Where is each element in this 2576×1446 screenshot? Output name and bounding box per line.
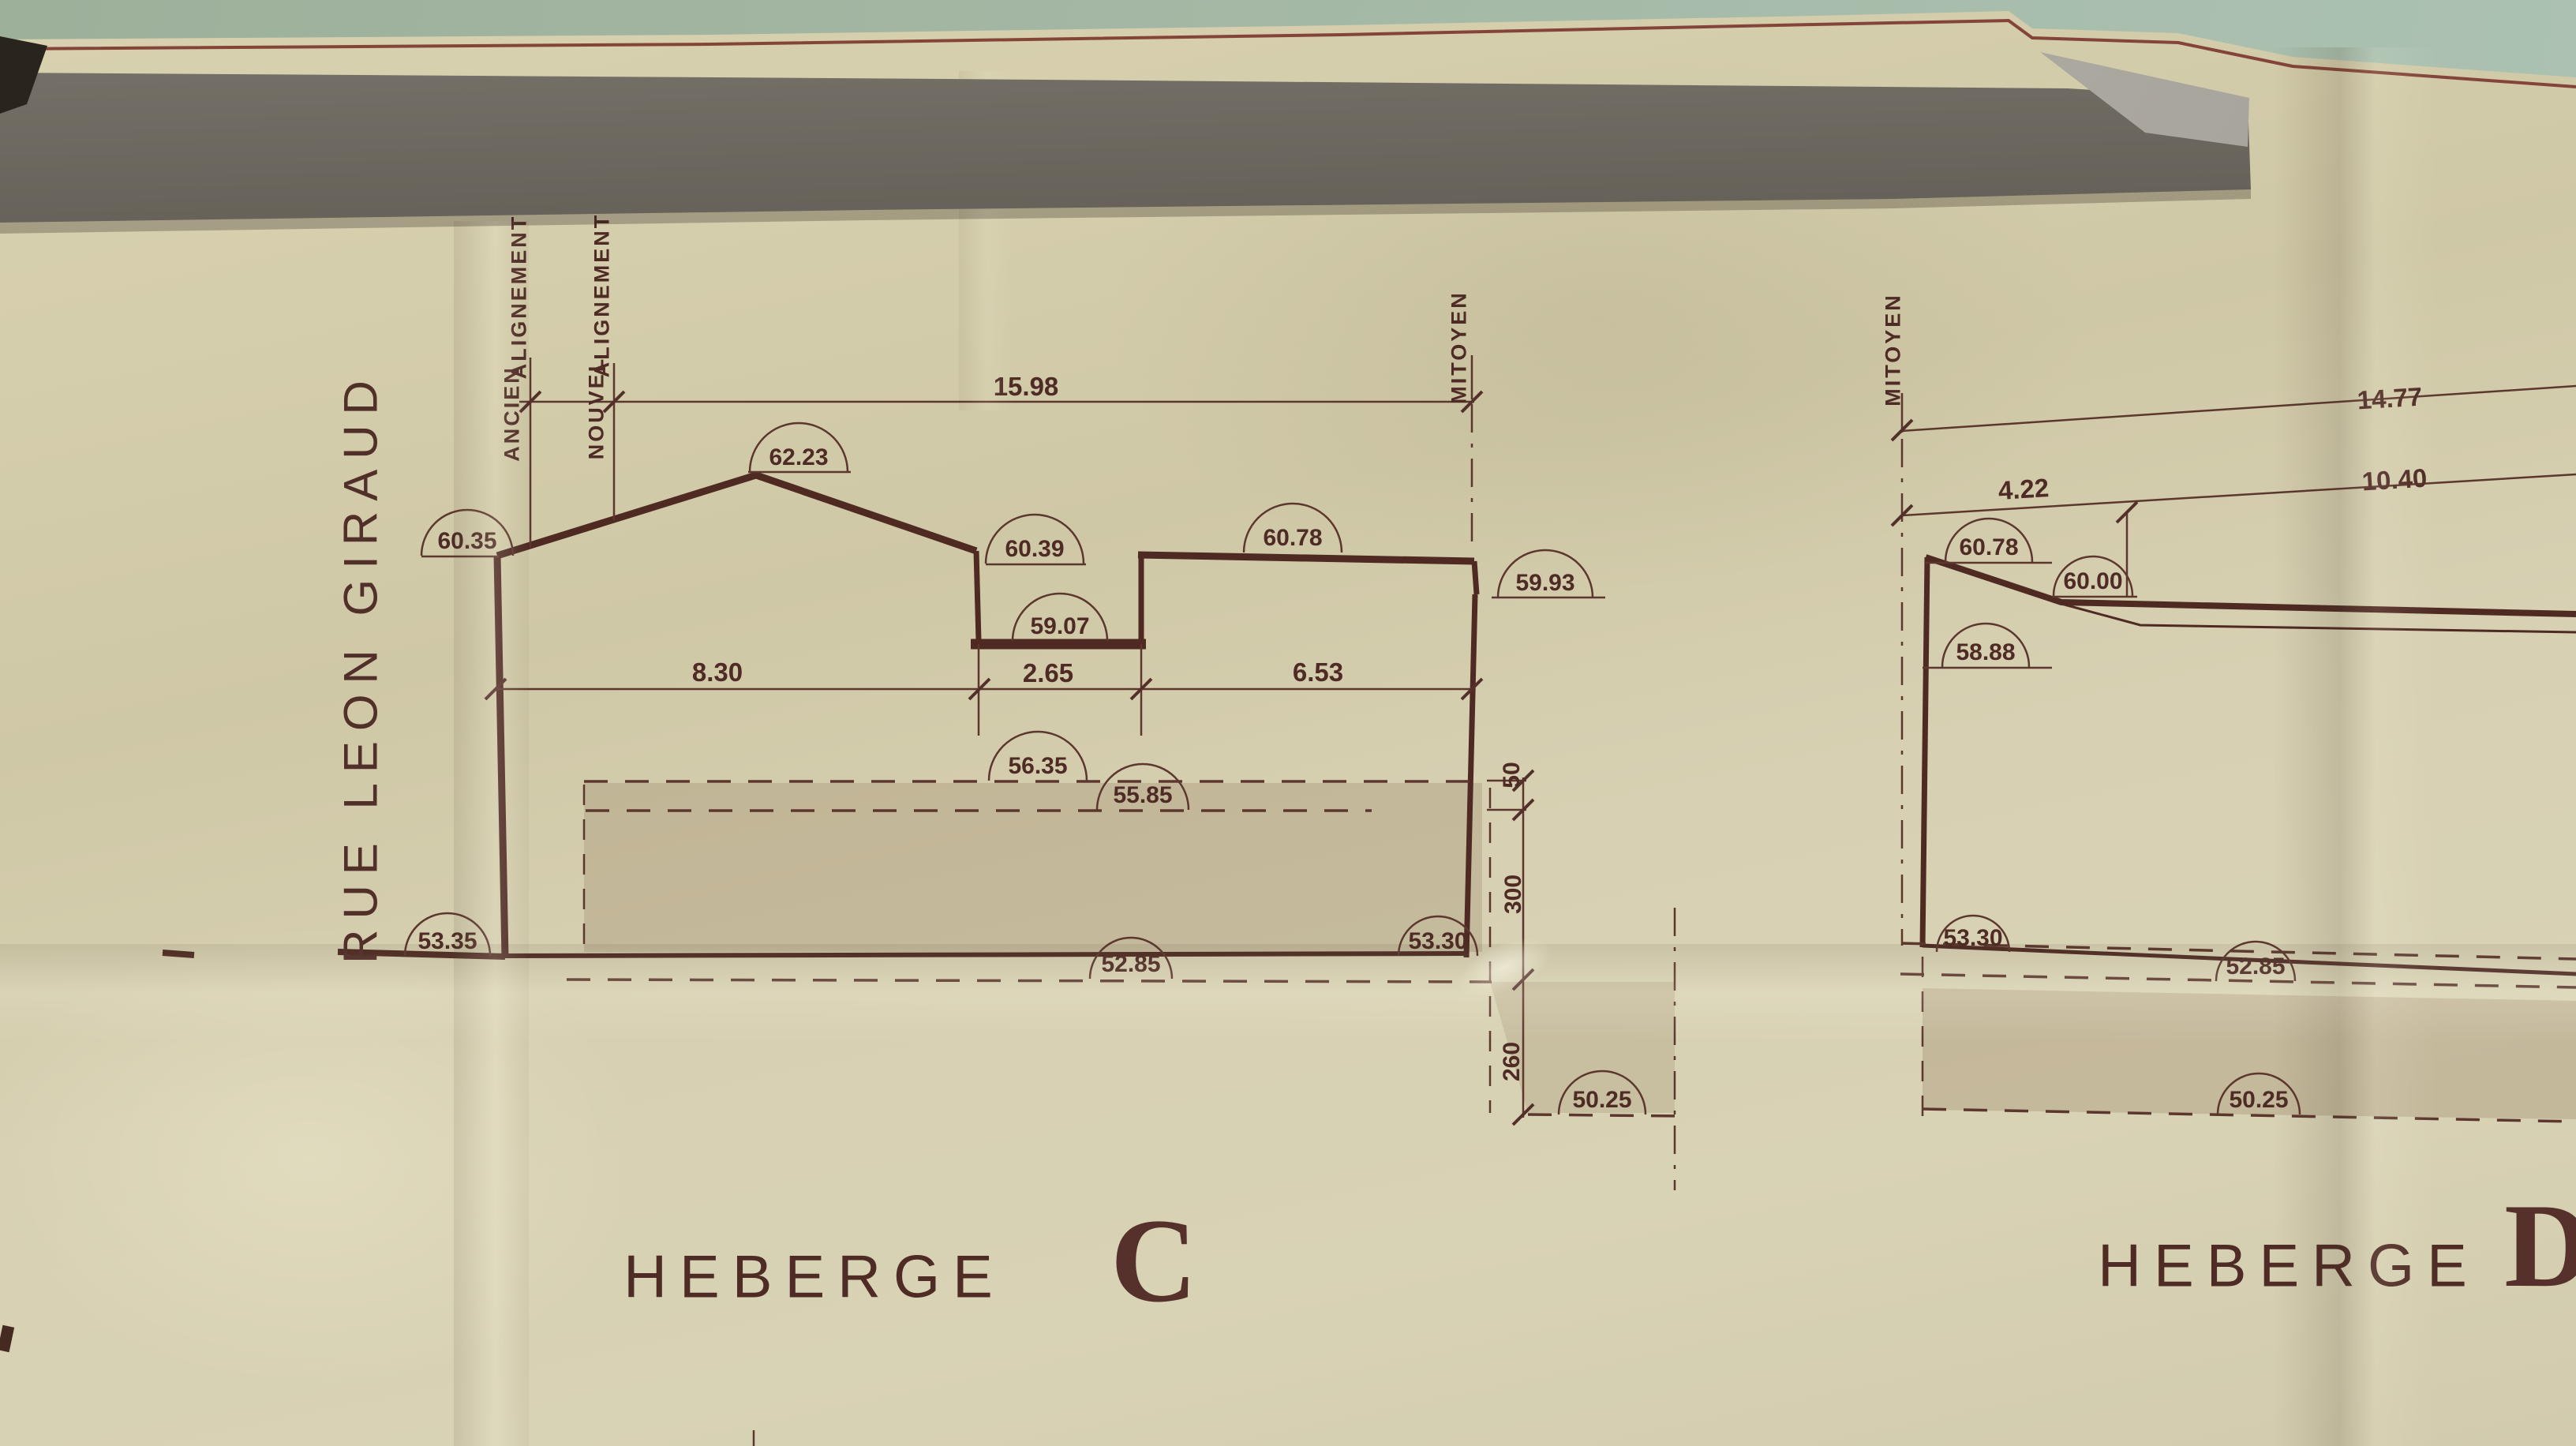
level-50-25-d: 50.25	[2229, 1087, 2288, 1114]
street-name-label: RUE LEON GIRAUD	[334, 370, 388, 964]
mitoyen-label-left: MITOYEN	[1447, 290, 1472, 404]
heberge-d-letter: D	[2504, 1177, 2576, 1314]
paper-border-line	[0, 21, 2576, 87]
level-53-35: 53.35	[417, 928, 477, 955]
level-53-30-c: 53.30	[1408, 928, 1467, 955]
dim-total-c: 15.98	[994, 372, 1059, 402]
dim-total-d: 14.77	[2357, 382, 2424, 416]
level-55-85: 55.85	[1113, 782, 1172, 809]
dim-seg2-d: 10.40	[2361, 463, 2428, 497]
dim-vertical-50: 50	[1499, 762, 1526, 788]
dim-seg1-d: 4.22	[1998, 473, 2050, 506]
heberge-c-letter: C	[1110, 1192, 1197, 1329]
heberge-d-building-outline	[1923, 557, 2576, 974]
dim-vertical-300: 300	[1500, 875, 1527, 914]
level-60-78-d: 60.78	[1959, 534, 2018, 561]
ancien-alignement-word-ancien: ANCIEN	[500, 365, 525, 462]
level-60-78-c: 60.78	[1263, 525, 1322, 552]
level-58-88: 58.88	[1956, 639, 2015, 666]
level-52-85-d: 52.85	[2226, 953, 2285, 980]
heberge-c-title: HEBERGE	[623, 1243, 1005, 1312]
level-59-93: 59.93	[1515, 570, 1574, 597]
level-60-35: 60.35	[437, 528, 496, 555]
photo-of-architectural-drawing: RUE LEON GIRAUD ALIGNEMENT ANCIEN ALIGNE…	[0, 0, 2576, 1446]
level-60-39: 60.39	[1005, 536, 1064, 563]
level-62-23: 62.23	[769, 444, 828, 471]
level-52-85-c: 52.85	[1101, 951, 1160, 978]
dimension-ticks	[485, 391, 2137, 1125]
level-60-00: 60.00	[2063, 568, 2122, 595]
dim-seg1-c: 8.30	[692, 657, 743, 687]
nouvel-alignement-word-nouvel: NOUVEL	[585, 357, 609, 460]
level-59-07: 59.07	[1030, 613, 1089, 640]
mitoyen-label-right: MITOYEN	[1881, 293, 1906, 406]
ancien-alignement-word-alignement: ALIGNEMENT	[507, 215, 532, 380]
dim-vertical-260: 260	[1499, 1042, 1526, 1081]
level-53-30-d: 53.30	[1943, 925, 2002, 952]
level-56-35: 56.35	[1008, 753, 1067, 780]
nouvel-alignement-word-alignement: ALIGNEMENT	[590, 213, 615, 378]
heberge-d-title: HEBERGE	[2098, 1232, 2480, 1301]
level-50-25-c: 50.25	[1572, 1087, 1631, 1114]
dim-seg3-c: 6.53	[1293, 657, 1343, 687]
dim-seg2-c: 2.65	[1023, 658, 1073, 688]
